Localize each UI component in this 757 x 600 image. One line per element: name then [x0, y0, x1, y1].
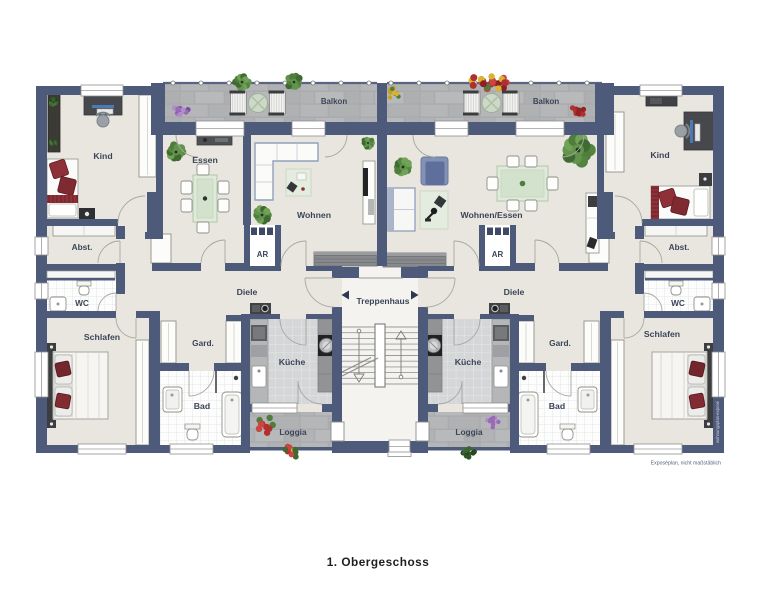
- svg-text:Bad: Bad: [549, 401, 565, 411]
- svg-text:Kind: Kind: [93, 151, 112, 161]
- svg-text:Kind: Kind: [650, 150, 669, 160]
- svg-text:Loggia: Loggia: [279, 427, 307, 437]
- svg-text:AR: AR: [492, 250, 504, 259]
- svg-text:Wohnen/Essen: Wohnen/Essen: [460, 210, 522, 220]
- svg-text:WC: WC: [671, 298, 685, 308]
- svg-text:Küche: Küche: [455, 357, 482, 367]
- svg-text:Treppenhaus: Treppenhaus: [357, 296, 410, 306]
- svg-text:Balkon: Balkon: [533, 97, 559, 106]
- svg-text:Abst.: Abst.: [669, 242, 690, 252]
- svg-text:Bad: Bad: [194, 401, 210, 411]
- svg-text:Diele: Diele: [504, 287, 525, 297]
- svg-text:Gard.: Gard.: [192, 338, 214, 348]
- svg-text:Schlafen: Schlafen: [644, 329, 680, 339]
- svg-text:Loggia: Loggia: [455, 427, 483, 437]
- svg-text:Gard.: Gard.: [549, 338, 571, 348]
- svg-text:Schlafen: Schlafen: [84, 332, 120, 342]
- svg-text:Abst.: Abst.: [72, 242, 93, 252]
- svg-text:AR: AR: [257, 250, 269, 259]
- svg-text:Balkon: Balkon: [321, 97, 347, 106]
- svg-text:Exposéplan, nicht maßstäblich: Exposéplan, nicht maßstäblich: [651, 461, 721, 467]
- svg-text:1. Obergeschoss: 1. Obergeschoss: [327, 555, 430, 569]
- svg-text:Diele: Diele: [237, 287, 258, 297]
- svg-text:WC: WC: [75, 298, 89, 308]
- svg-text:Essen: Essen: [192, 155, 218, 165]
- svg-text:Wohnen: Wohnen: [297, 210, 331, 220]
- svg-text:Küche: Küche: [279, 357, 306, 367]
- svg-text:wohnungsplan-exposé: wohnungsplan-exposé: [715, 400, 720, 443]
